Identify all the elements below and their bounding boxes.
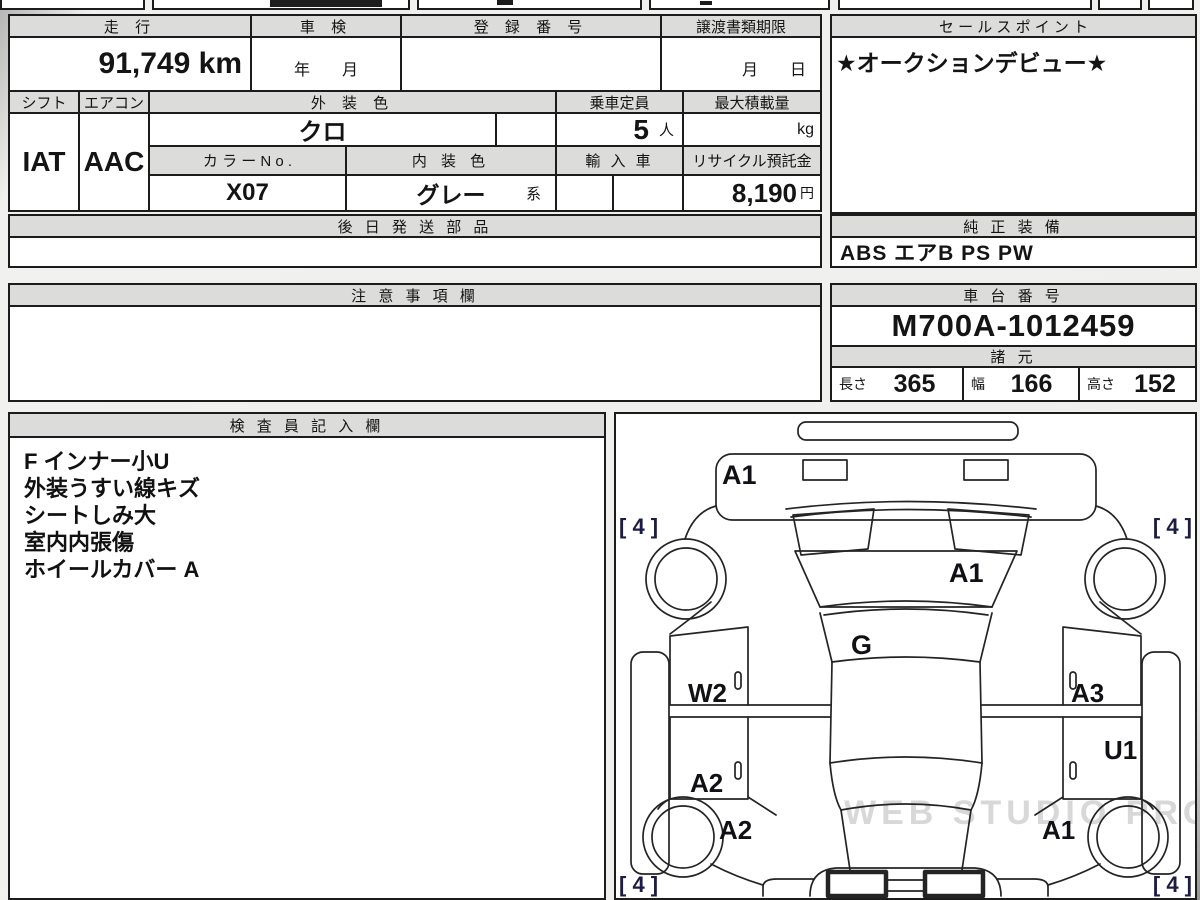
- door-handle-icon: [1070, 762, 1076, 779]
- damage-diagram-box: WEB STUDIO PRO: [614, 412, 1197, 900]
- top-strip-cell: [838, 0, 1092, 10]
- spec-length-label: 長さ: [839, 374, 867, 394]
- damage-label-door-front-right: A3: [1071, 678, 1104, 708]
- equipment-value: ABS エアB PS PW: [830, 236, 1197, 268]
- mileage-value: 91,749 km: [8, 36, 252, 92]
- exterior-color-value: クロ: [148, 112, 497, 147]
- spec-height-label: 高さ: [1087, 374, 1115, 394]
- top-strip-cell: [0, 0, 145, 10]
- chassis-header: 車 台 番 号: [830, 283, 1197, 307]
- damage-label-door-front-left: W2: [688, 678, 727, 708]
- capacity-number: 5: [633, 114, 649, 146]
- recycle-value: 8,190 円: [682, 174, 822, 212]
- exterior-color-extra: [495, 112, 557, 147]
- sales-point-header: セ ー ル ス ポ イ ン ト: [830, 14, 1197, 38]
- shift-value: IAT: [8, 112, 80, 212]
- cutoff-text-fragment: [700, 1, 712, 5]
- capacity-header: 乗車定員: [555, 90, 684, 114]
- damage-label-quarter-rear-left: A2: [719, 815, 752, 845]
- top-strip-cell: [649, 0, 830, 10]
- inspection-value: 年 月: [250, 36, 402, 92]
- damage-label-front-bumper: A1: [722, 460, 757, 490]
- color-no-header: カ ラ ー N o .: [148, 145, 347, 176]
- spec-width: 幅 166: [962, 366, 1080, 402]
- exterior-color-header: 外 装 色: [148, 90, 557, 114]
- inspector-note: 室内内張傷: [24, 529, 590, 556]
- aircon-header: エアコン: [78, 90, 150, 114]
- spec-height-value: 152: [1115, 370, 1195, 399]
- aircon-value: AAC: [78, 112, 150, 212]
- import-header: 輸 入 車: [555, 145, 684, 176]
- tire-depth-front-right: [ 4 ]: [1153, 514, 1192, 539]
- later-parts-header: 後 日 発 送 部 品: [8, 214, 822, 238]
- inspector-note: ホイールカバー A: [24, 556, 590, 583]
- tire-depth-front-left: [ 4 ]: [619, 514, 658, 539]
- top-strip-cell: [1098, 0, 1142, 10]
- spec-length: 長さ 365: [830, 366, 964, 402]
- interior-color-text: グレー: [417, 176, 486, 210]
- cutoff-text-fragment: [270, 0, 382, 7]
- inspector-note: 外装うすい線キズ: [24, 475, 590, 502]
- registration-header: 登 録 番 号: [400, 14, 662, 38]
- door-handle-icon: [735, 762, 741, 779]
- interior-color-header: 内 装 色: [345, 145, 557, 176]
- cutoff-text-fragment: [497, 0, 513, 5]
- equipment-header: 純 正 装 備: [830, 214, 1197, 238]
- damage-label-windshield: A1: [949, 558, 984, 588]
- transfer-deadline-header: 譲渡書類期限: [660, 14, 822, 38]
- car-top-view: WEB STUDIO PRO: [616, 414, 1195, 898]
- capacity-unit: 人: [659, 119, 674, 140]
- interior-color-suffix: 系: [526, 183, 541, 204]
- color-no-value: X07: [148, 174, 347, 212]
- inspector-note: シートしみ大: [24, 502, 590, 529]
- specs-header: 諸 元: [830, 345, 1197, 368]
- transfer-deadline-value: 月 日: [660, 36, 822, 92]
- auction-sheet: 走 行 車 検 登 録 番 号 譲渡書類期限 91,749 km 年 月 月 日…: [0, 0, 1200, 900]
- import-value-right: [612, 174, 684, 212]
- inspector-box: F インナー小U 外装うすい線キズ シートしみ大 室内内張傷 ホイールカバー A: [8, 436, 606, 900]
- inspector-note: F インナー小U: [24, 448, 590, 475]
- capacity-value: 5 人: [555, 112, 684, 147]
- caution-header: 注 意 事 項 欄: [8, 283, 822, 307]
- shift-header: シフト: [8, 90, 80, 114]
- damage-label-roof: G: [851, 630, 872, 660]
- recycle-unit: 円: [800, 183, 814, 203]
- chassis-value: M700A-1012459: [830, 305, 1197, 347]
- spec-width-value: 166: [985, 370, 1078, 399]
- later-parts-value: [8, 236, 822, 268]
- recycle-amount: 8,190: [732, 178, 797, 209]
- damage-label-door-rear-right: U1: [1104, 735, 1137, 765]
- mileage-header: 走 行: [8, 14, 252, 38]
- spec-width-label: 幅: [971, 374, 985, 394]
- sales-point-box: ★オークションデビュー★: [830, 36, 1197, 214]
- damage-label-quarter-rear-right: A1: [1042, 815, 1075, 845]
- tire-depth-rear-left: [ 4 ]: [619, 872, 658, 897]
- door-handle-icon: [735, 672, 741, 689]
- max-load-value: kg: [682, 112, 822, 147]
- import-value-left: [555, 174, 614, 212]
- spec-height: 高さ 152: [1078, 366, 1197, 402]
- recycle-header: リサイクル預託金: [682, 145, 822, 176]
- top-strip-cell: [417, 0, 642, 10]
- top-strip-cell: [1148, 0, 1194, 10]
- spec-length-value: 365: [867, 370, 962, 399]
- tire-depth-rear-right: [ 4 ]: [1153, 872, 1192, 897]
- registration-value: [400, 36, 662, 92]
- damage-label-door-rear-left: A2: [690, 768, 723, 798]
- inspection-header: 車 検: [250, 14, 402, 38]
- caution-box: [8, 305, 822, 402]
- inspector-header: 検 査 員 記 入 欄: [8, 412, 606, 438]
- interior-color-value: グレー 系: [345, 174, 557, 212]
- max-load-header: 最大積載量: [682, 90, 822, 114]
